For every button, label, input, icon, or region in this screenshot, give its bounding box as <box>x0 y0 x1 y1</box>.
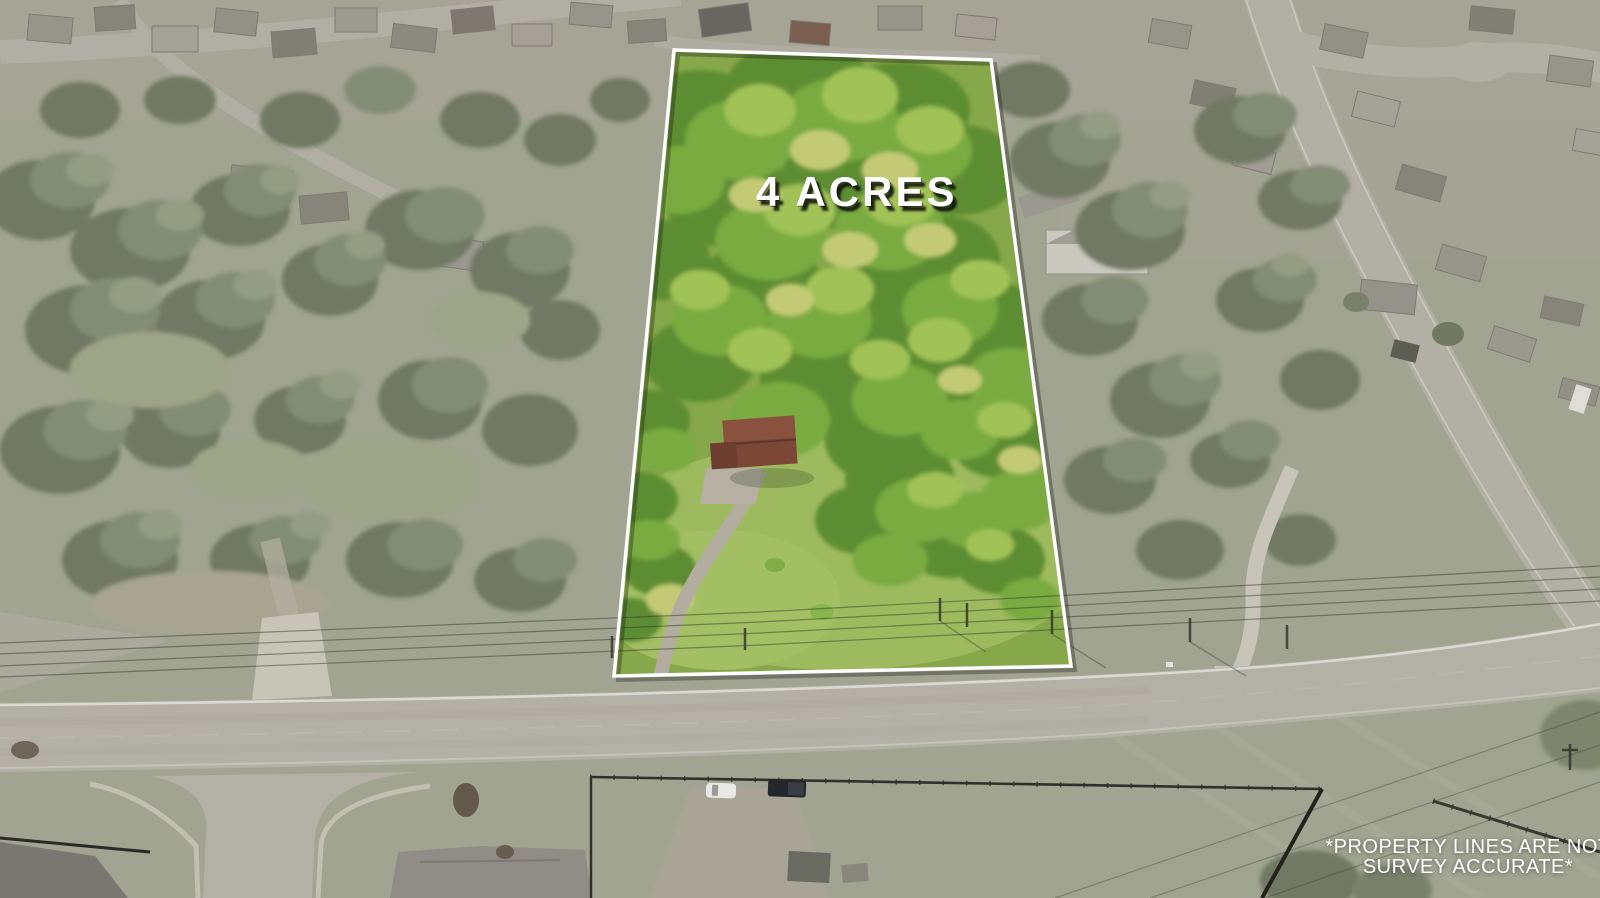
white-van <box>706 782 737 798</box>
disclaimer-line-2: SURVEY ACCURATE* <box>1310 857 1600 877</box>
mailbox <box>1166 662 1173 667</box>
disclaimer-line-1: *PROPERTY LINES ARE NOT <box>1310 837 1600 857</box>
acreage-label: 4 ACRES <box>756 168 958 216</box>
aerial-scene <box>0 0 1600 898</box>
aerial-property-photo: 4 ACRES *PROPERTY LINES ARE NOT SURVEY A… <box>0 0 1600 898</box>
survey-disclaimer: *PROPERTY LINES ARE NOT SURVEY ACCURATE* <box>1310 837 1600 877</box>
